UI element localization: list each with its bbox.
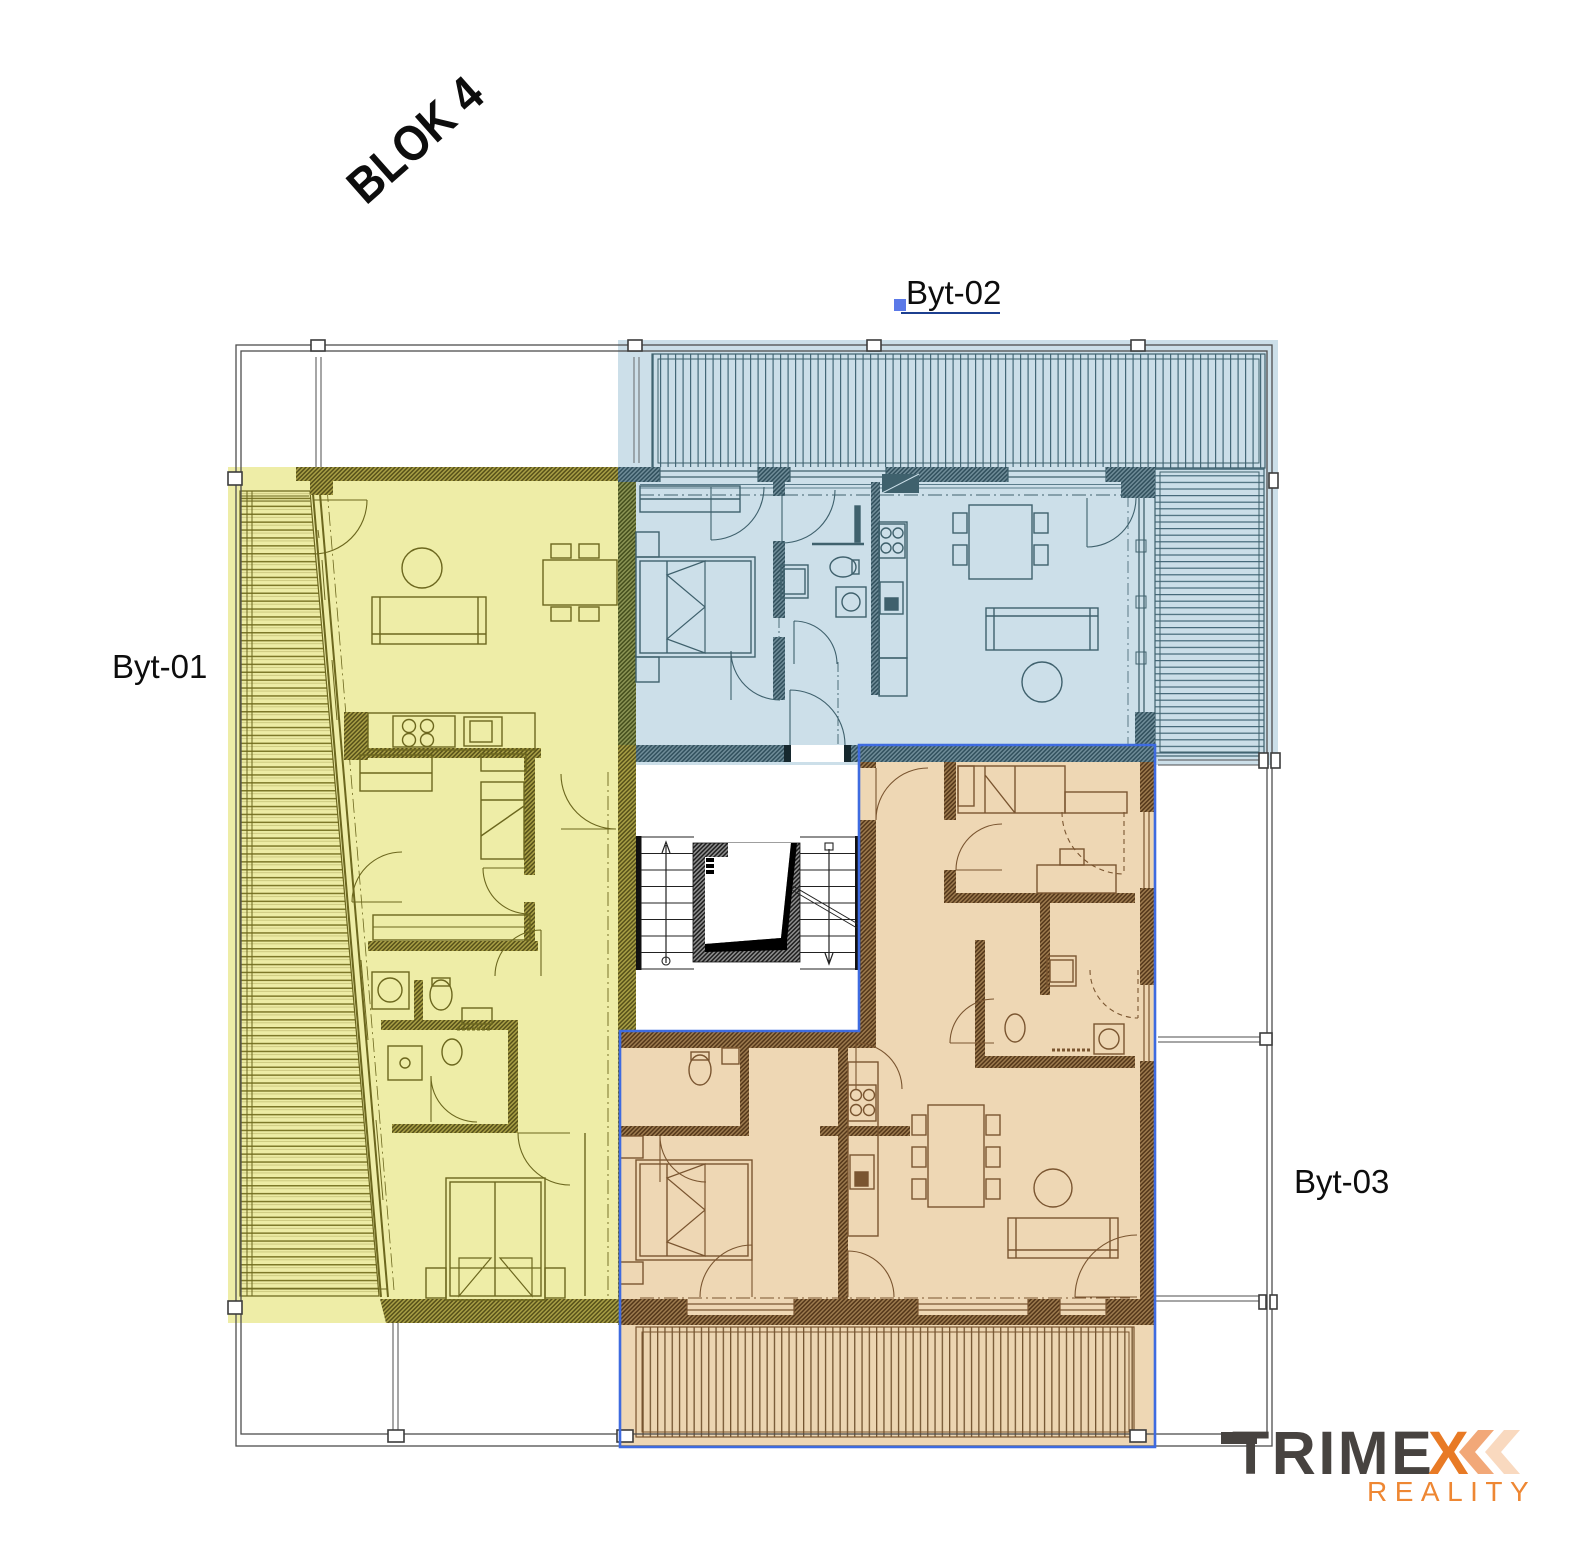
svg-text:Byt-01: Byt-01 [112,648,207,685]
svg-text:Byt-03: Byt-03 [1294,1163,1389,1200]
svg-text:REALITY: REALITY [1367,1476,1536,1507]
svg-text:Byt-02: Byt-02 [906,274,1001,311]
